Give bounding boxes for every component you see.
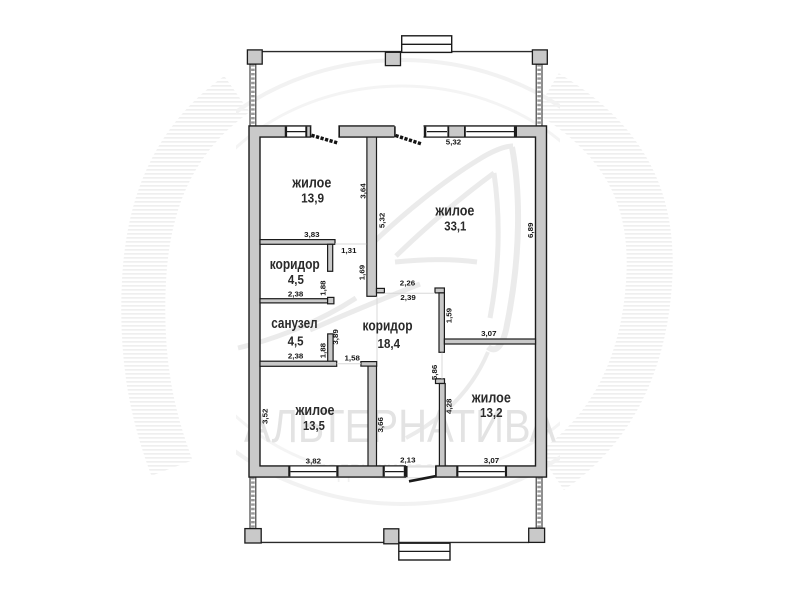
svg-text:5,32: 5,32	[378, 213, 387, 228]
svg-text:3,89: 3,89	[331, 329, 340, 344]
svg-text:3,07: 3,07	[484, 456, 499, 465]
svg-text:АЛЬТЕРНАТИВА: АЛЬТЕРНАТИВА	[244, 400, 556, 452]
svg-text:2,39: 2,39	[400, 293, 415, 302]
svg-text:3,52: 3,52	[261, 409, 270, 424]
svg-text:коридор: коридор	[270, 256, 320, 273]
svg-text:13,2: 13,2	[480, 405, 503, 420]
svg-text:2,26: 2,26	[400, 278, 415, 287]
svg-text:3,64: 3,64	[359, 183, 368, 198]
svg-text:жилое: жилое	[435, 203, 475, 220]
svg-text:33,1: 33,1	[444, 218, 466, 233]
svg-text:5,86: 5,86	[430, 365, 439, 380]
svg-text:1,69: 1,69	[358, 265, 367, 280]
svg-text:2,38: 2,38	[288, 351, 303, 360]
svg-text:санузел: санузел	[271, 315, 317, 332]
svg-text:коридор: коридор	[363, 318, 413, 335]
svg-text:13,9: 13,9	[301, 190, 324, 205]
svg-text:3,83: 3,83	[304, 230, 319, 239]
svg-text:4,5: 4,5	[288, 333, 304, 348]
svg-text:4,5: 4,5	[288, 272, 304, 287]
svg-text:1,59: 1,59	[444, 308, 453, 323]
svg-text:3,82: 3,82	[306, 456, 321, 465]
svg-text:3,66: 3,66	[376, 417, 385, 432]
svg-text:5,32: 5,32	[446, 138, 461, 147]
svg-text:2,38: 2,38	[288, 290, 303, 299]
svg-text:1,31: 1,31	[341, 246, 356, 255]
svg-text:1,88: 1,88	[319, 343, 328, 358]
svg-text:6,89: 6,89	[526, 223, 535, 238]
svg-text:1,88: 1,88	[319, 280, 328, 295]
svg-text:18,4: 18,4	[378, 336, 401, 351]
svg-text:13,5: 13,5	[303, 418, 325, 433]
svg-text:жилое: жилое	[291, 175, 331, 192]
svg-text:1,58: 1,58	[345, 353, 360, 362]
svg-text:2,13: 2,13	[400, 456, 415, 465]
svg-text:3,07: 3,07	[481, 329, 496, 338]
svg-text:жилое: жилое	[471, 390, 511, 407]
svg-text:4,28: 4,28	[445, 399, 454, 414]
svg-text:жилое: жилое	[295, 402, 335, 419]
